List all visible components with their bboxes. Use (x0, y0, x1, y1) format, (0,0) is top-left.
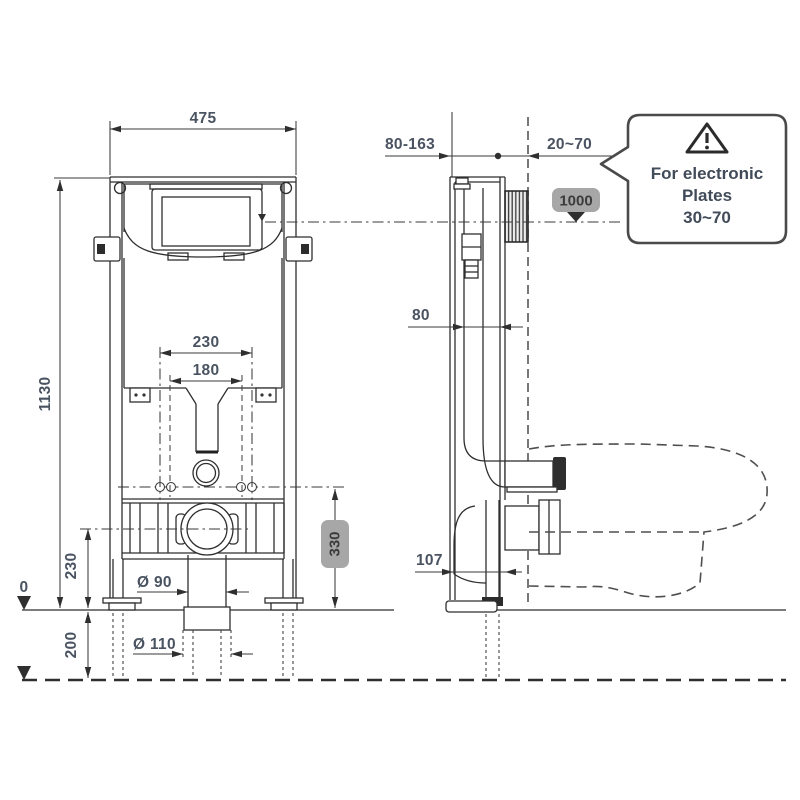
plate-center-marker-icon (258, 214, 266, 222)
side-foot-plate (446, 601, 497, 612)
panel-lintel (150, 184, 262, 189)
inlet-fitting (456, 178, 468, 184)
dim-outlet-height-230: 230 (63, 529, 91, 608)
callout-line2: Plates (682, 186, 732, 205)
bolt-hole (167, 483, 176, 492)
wing-plate-left (130, 388, 150, 402)
fill-valve (462, 234, 481, 278)
dim-below-floor-200: 200 (63, 612, 91, 678)
dim-node-dot (495, 153, 501, 159)
dim-bolt-outer-230: 230 (160, 334, 252, 500)
wall-anchor-bracket-right (286, 237, 312, 261)
bolt-hole (237, 483, 246, 492)
callout-note: For electronic Plates 30~70 (601, 115, 786, 243)
dim-20-70-label: 20~70 (547, 136, 592, 153)
dia-110-label: Ø 110 (133, 636, 176, 653)
foot-left (103, 559, 141, 610)
flush-plate-side (505, 191, 528, 242)
dim-frame-depth-80: 80 (408, 307, 523, 330)
outlet-clamp (176, 503, 238, 555)
front-view (80, 177, 346, 678)
datum-triangle-slab-icon (17, 666, 31, 680)
dim-width-475: 475 (110, 110, 296, 175)
wing-plate-right (256, 388, 276, 402)
datum-triangle-floor-icon (17, 596, 31, 610)
access-panel-outer (152, 189, 262, 250)
access-panel-opening (162, 197, 250, 246)
badge-330-label: 330 (327, 531, 344, 556)
dim-107-label: 107 (416, 552, 443, 569)
dim-230-bolt-label: 230 (193, 334, 220, 351)
ground-lines: 0 (17, 579, 786, 680)
dim-80-163-label: 80-163 (385, 136, 435, 153)
dim-180-label: 180 (193, 362, 220, 379)
technical-drawing-page: 0 (0, 0, 800, 800)
dim-plate-height-1000: 1000 (265, 188, 622, 222)
dia-90-label: Ø 90 (137, 574, 172, 591)
dim-flush-dia-90: Ø 90 (137, 574, 249, 595)
dim-1130-label: 1130 (37, 377, 54, 412)
dim-outlet-offset-107: 107 (415, 552, 522, 575)
cistern-front (124, 184, 282, 260)
dim-fixing-height-330: 330 (321, 489, 349, 608)
outlet-bell-stub (505, 500, 560, 554)
dim-depth-range-80-163: 80-163 20~70 (385, 136, 618, 159)
callout-line1: For electronic (651, 164, 763, 183)
dim-475-label: 475 (190, 110, 217, 127)
callout-line3: 30~70 (683, 208, 731, 227)
cover-curve (124, 228, 282, 257)
badge-1000-label: 1000 (559, 193, 592, 210)
height-marker-triangle-icon (567, 212, 585, 222)
dim-bolt-inner-180: 180 (170, 362, 242, 497)
tank-body (124, 258, 282, 452)
dim-80-label: 80 (412, 307, 430, 324)
datum-zero-label: 0 (20, 579, 29, 596)
wall-anchor-bracket-left (94, 237, 120, 261)
dim-230-height-label: 230 (63, 553, 80, 580)
waste-collar (183, 607, 231, 678)
foot-right (265, 559, 303, 610)
wc-frame-installation-drawing: 0 (0, 0, 800, 800)
waste-elbow (454, 500, 499, 598)
dim-200-label: 200 (63, 632, 80, 659)
flush-stub-cap (553, 457, 566, 490)
